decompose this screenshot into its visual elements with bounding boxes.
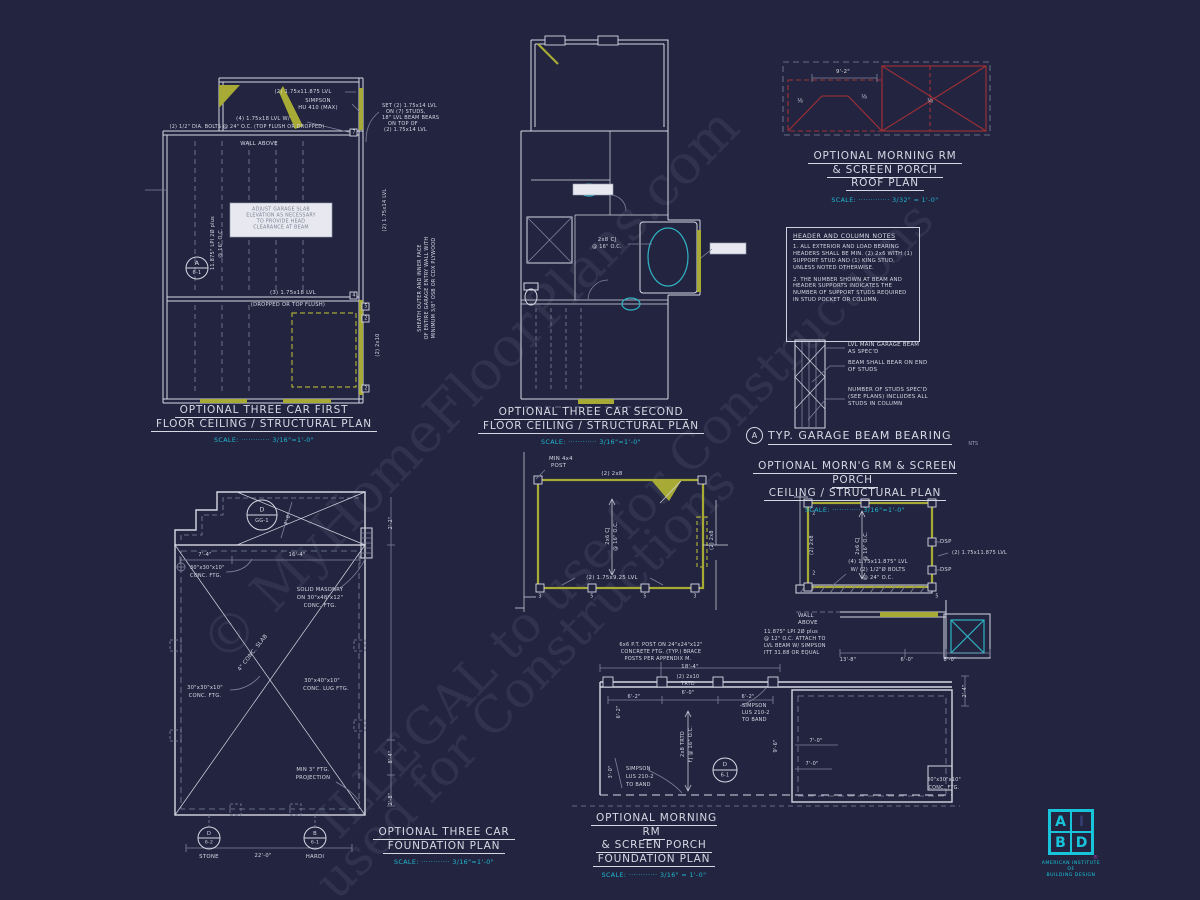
foundation-mid-linework (572, 662, 960, 806)
first-floor-plan-linework (145, 78, 379, 403)
logo-letter-b: B (1050, 832, 1071, 853)
scale-label: SCALE: ············ 3/16"=1'-0" (368, 856, 520, 870)
scale-label: SCALE: ············ 3/16"=1'-0" (130, 434, 398, 448)
title-line: OPTIONAL THREE CAR FIRST (130, 404, 398, 418)
scale-label: SCALE: ············· 3/32" = 1'-0" (795, 194, 975, 208)
mornrm-ceiling-linework (794, 492, 990, 706)
notes-title: HEADER AND COLUMN NOTES (793, 233, 914, 240)
title-foundation-left-plan: OPTIONAL THREE CAR FOUNDATION PLAN SCALE… (368, 826, 520, 870)
title-mornrm-ceiling-plan: OPTIONAL MORN'G RM & SCREEN PORCH CEILIN… (730, 460, 980, 517)
logo-letter-a: A (1050, 811, 1071, 832)
title-beam-bearing-detail: ATYP. GARAGE BEAM BEARING NTS (746, 425, 982, 444)
detail-bubble: A (746, 427, 763, 444)
title-foundation-mid-plan: OPTIONAL MORNING RM & SCREEN PORCH FOUND… (578, 812, 730, 883)
logo-text: BUILDING DESIGN (1038, 873, 1104, 879)
title-line: CEILING / STRUCTURAL PLAN (730, 487, 980, 501)
aibd-logo: A I B D ® AMERICAN INSTITUTE OF BUILDING… (1038, 809, 1104, 879)
title-line: OPTIONAL THREE CAR (368, 826, 520, 840)
title-second-floor-plan: OPTIONAL THREE CAR SECOND FLOOR CEILING … (468, 406, 714, 450)
title-line: & SCREEN PORCH (578, 839, 730, 853)
porch-ceiling-linework (515, 452, 728, 612)
plan-linework-canvas (0, 0, 1200, 900)
title-line: OPTIONAL MORN'G RM & SCREEN PORCH (730, 460, 980, 487)
title-line: ROOF PLAN (795, 177, 975, 191)
title-line: OPTIONAL MORNING RM (795, 150, 975, 164)
title-line: FLOOR CEILING / STRUCTURAL PLAN (468, 420, 714, 434)
scale-label: SCALE: ············ 3/16"=1'-0" (468, 436, 714, 450)
title-line: FLOOR CEILING / STRUCTURAL PLAN (130, 418, 398, 432)
nts-label: NTS (968, 442, 978, 447)
title-line: FOUNDATION PLAN (578, 853, 730, 867)
notes-paragraph: 1. ALL EXTERIOR AND LOAD BEARING HEADERS… (793, 244, 914, 272)
notes-paragraph: 2. THE NUMBER SHOWN AT BEAM AND HEADER S… (793, 277, 914, 305)
blueprint-sheet: © MyHomeFloorPlans.com ILLEGAL to use fo… (0, 0, 1200, 900)
registered-mark: ® (1093, 855, 1098, 861)
title-line: & SCREEN PORCH (795, 164, 975, 178)
title-line: FOUNDATION PLAN (368, 840, 520, 854)
header-column-notes: HEADER AND COLUMN NOTES 1. ALL EXTERIOR … (786, 227, 920, 342)
title-line: OPTIONAL THREE CAR SECOND (468, 406, 714, 420)
beam-bearing-detail-linework (795, 340, 845, 428)
scale-label: SCALE: ············ 3/16"=1'-0" (730, 504, 980, 518)
title-first-floor-plan: OPTIONAL THREE CAR FIRST FLOOR CEILING /… (130, 404, 398, 448)
second-floor-plan-linework (515, 36, 746, 407)
roof-plan-linework (783, 62, 990, 135)
title-line: OPTIONAL MORNING RM (578, 812, 730, 839)
foundation-left-linework (170, 492, 395, 852)
logo-letter-d: D (1071, 832, 1092, 853)
title-line: TYP. GARAGE BEAM BEARING (768, 429, 952, 445)
logo-letter-i: I (1071, 811, 1092, 832)
aibd-logo-square: A I B D (1048, 809, 1094, 855)
title-roof-plan: OPTIONAL MORNING RM & SCREEN PORCH ROOF … (795, 150, 975, 207)
scale-label: SCALE: ············ 3/16" = 1'-0" (578, 869, 730, 883)
